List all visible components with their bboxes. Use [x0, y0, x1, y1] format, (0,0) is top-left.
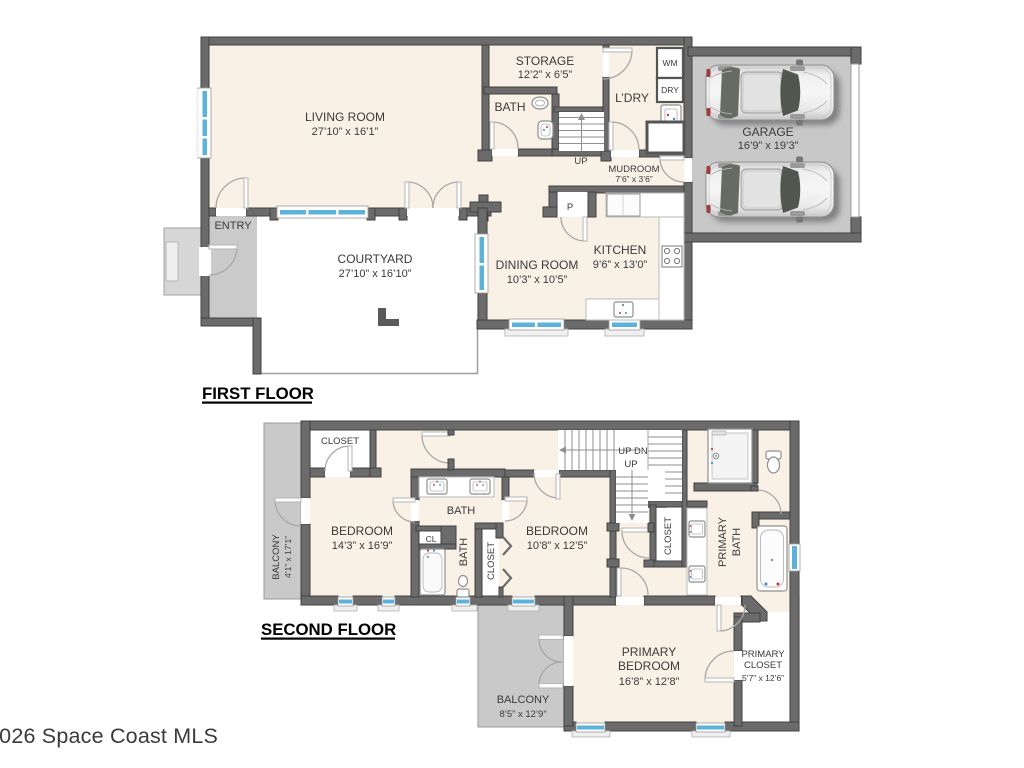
svg-text:P: P: [567, 202, 573, 213]
svg-text:5’7” x 12’6”: 5’7” x 12’6”: [742, 673, 784, 683]
svg-text:16’9” x 19’3”: 16’9” x 19’3”: [738, 140, 799, 152]
svg-text:BALCONY: BALCONY: [497, 694, 550, 706]
svg-text:STORAGE: STORAGE: [516, 54, 574, 68]
svg-text:BEDROOM: BEDROOM: [618, 659, 680, 673]
svg-text:WM: WM: [662, 58, 677, 68]
svg-text:4’1” x 17’1”: 4’1” x 17’1”: [283, 536, 293, 578]
svg-text:COURTYARD: COURTYARD: [338, 252, 413, 266]
svg-text:10’8” x 12’5”: 10’8” x 12’5”: [527, 540, 588, 552]
svg-text:CL: CL: [426, 534, 437, 544]
svg-text:PRIMARY: PRIMARY: [717, 516, 729, 567]
svg-text:LIVING ROOM: LIVING ROOM: [305, 110, 385, 124]
svg-text:PRIMARY: PRIMARY: [622, 645, 676, 659]
svg-text:BATH: BATH: [458, 538, 470, 567]
svg-text:10’3” x 10’5”: 10’3” x 10’5”: [507, 274, 568, 286]
svg-text:SECOND FLOOR: SECOND FLOOR: [261, 620, 396, 639]
svg-text:BEDROOM: BEDROOM: [331, 524, 393, 538]
svg-text:16’8” x 12’8”: 16’8” x 12’8”: [619, 676, 680, 688]
svg-text:8’5” x 12’9”: 8’5” x 12’9”: [500, 709, 547, 720]
svg-text:KITCHEN: KITCHEN: [594, 243, 647, 257]
svg-text:2026 Space Coast MLS: 2026 Space Coast MLS: [0, 724, 218, 748]
svg-text:BATH: BATH: [447, 505, 476, 517]
svg-text:BALCONY: BALCONY: [271, 534, 282, 580]
svg-text:CLOSET: CLOSET: [744, 660, 782, 671]
svg-text:UP: UP: [574, 156, 587, 167]
svg-text:27’10” x 16’10”: 27’10” x 16’10”: [339, 268, 412, 280]
svg-text:9’6” x 13’0”: 9’6” x 13’0”: [593, 259, 648, 271]
svg-text:CLOSET: CLOSET: [486, 542, 497, 580]
svg-text:14’3” x 16’9”: 14’3” x 16’9”: [332, 540, 393, 552]
svg-text:CLOSET: CLOSET: [663, 517, 674, 555]
svg-text:BEDROOM: BEDROOM: [526, 524, 588, 538]
svg-text:GARAGE: GARAGE: [742, 125, 793, 139]
svg-text:UP DN: UP DN: [618, 446, 648, 457]
svg-text:UP: UP: [624, 459, 637, 470]
svg-text:CLOSET: CLOSET: [321, 436, 359, 447]
svg-text:27’10” x 16’1”: 27’10” x 16’1”: [312, 126, 379, 138]
svg-text:12’2” x 6’5”: 12’2” x 6’5”: [518, 69, 573, 81]
svg-text:ENTRY: ENTRY: [214, 220, 252, 232]
svg-text:DINING ROOM: DINING ROOM: [496, 258, 579, 272]
svg-text:BATH: BATH: [494, 100, 525, 114]
svg-text:FIRST FLOOR: FIRST FLOOR: [202, 384, 314, 403]
svg-text:BATH: BATH: [731, 528, 743, 557]
svg-text:PRIMARY: PRIMARY: [741, 649, 785, 660]
svg-text:L’DRY: L’DRY: [615, 91, 649, 105]
svg-text:7’6” x 3’6”: 7’6” x 3’6”: [615, 174, 652, 184]
svg-text:DRY: DRY: [661, 85, 679, 95]
